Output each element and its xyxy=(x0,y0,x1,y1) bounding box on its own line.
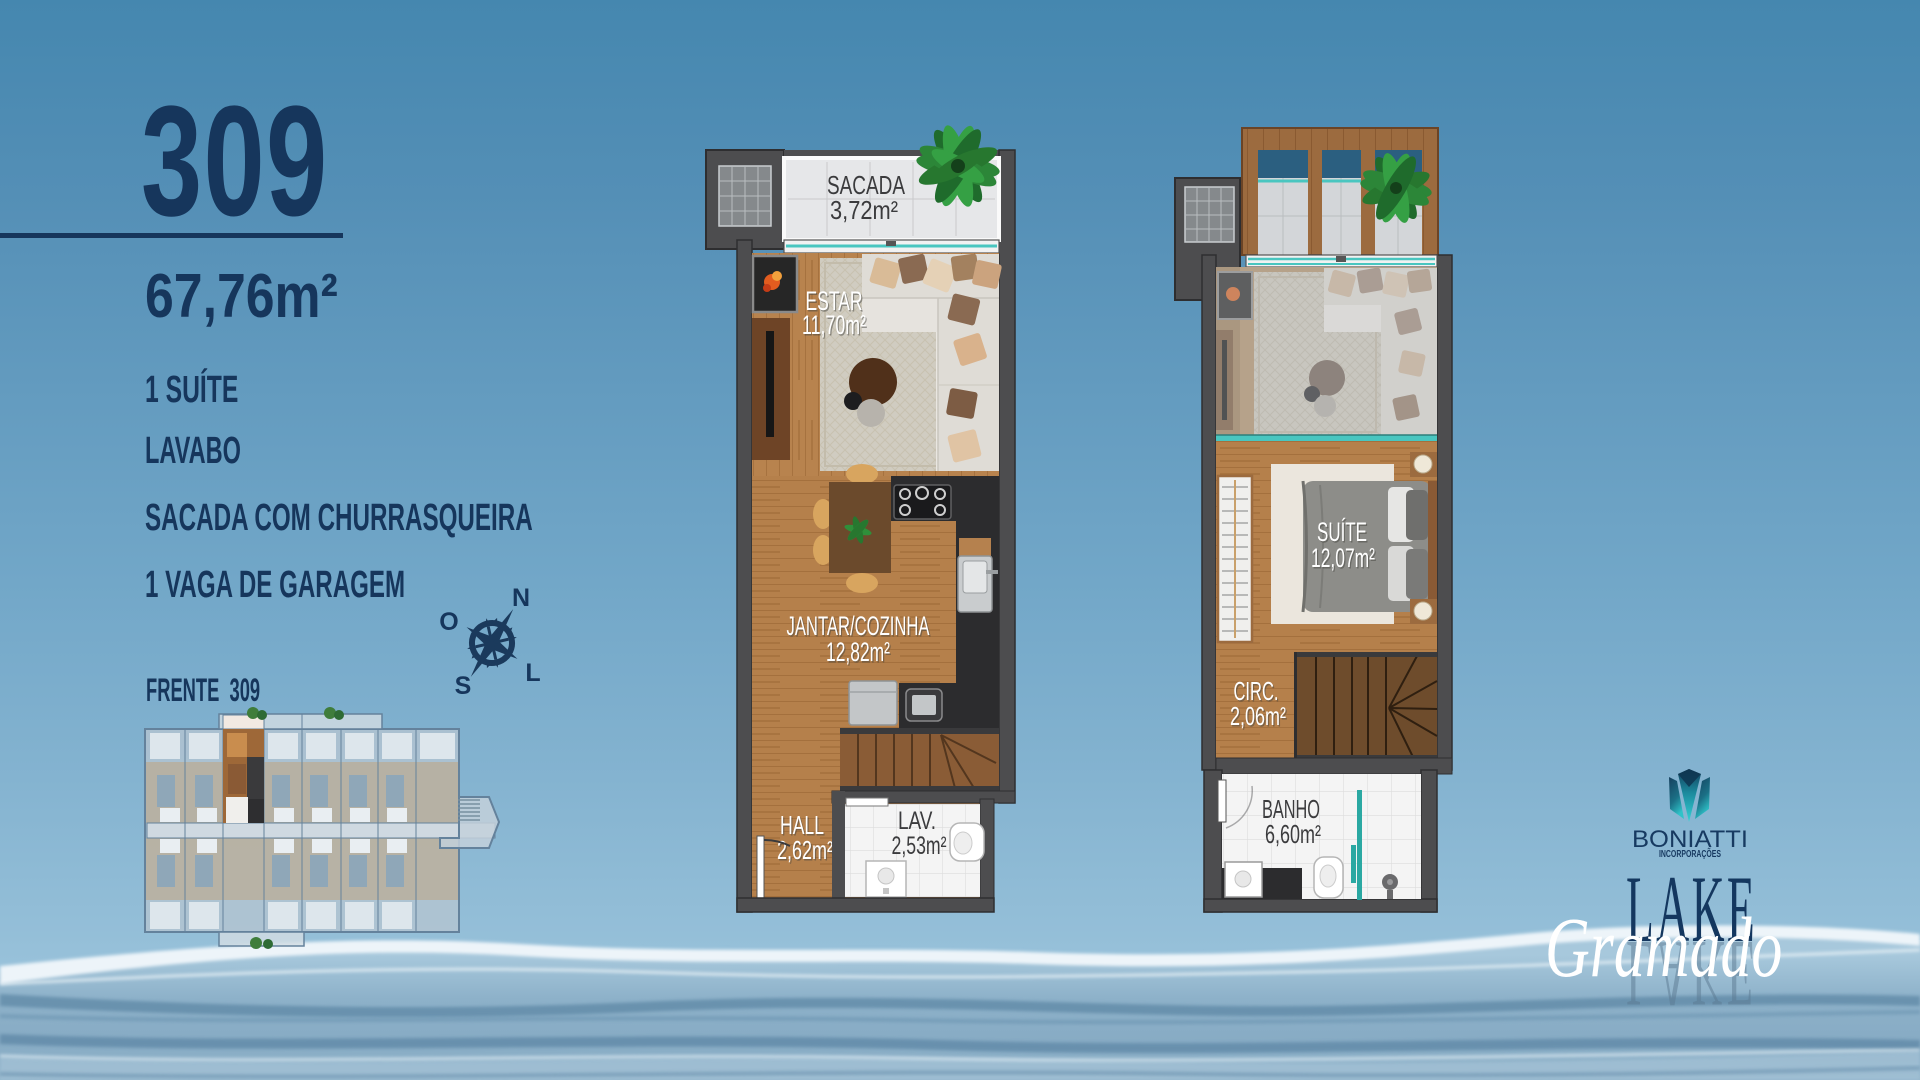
svg-text:6,60m²: 6,60m² xyxy=(1265,819,1321,849)
svg-text:11,70m²: 11,70m² xyxy=(802,310,866,340)
svg-text:3,72m²: 3,72m² xyxy=(830,195,898,225)
svg-text:L: L xyxy=(525,659,540,687)
svg-text:S: S xyxy=(455,672,472,700)
svg-text:O: O xyxy=(439,608,458,636)
svg-text:LAV.: LAV. xyxy=(898,807,936,835)
svg-text:2,62m²: 2,62m² xyxy=(777,835,833,865)
svg-text:12,07m²: 12,07m² xyxy=(1311,543,1375,573)
svg-text:N: N xyxy=(512,584,530,612)
svg-text:2,06m²: 2,06m² xyxy=(1230,701,1286,731)
svg-text:12,82m²: 12,82m² xyxy=(826,637,890,667)
svg-text:2,53m²: 2,53m² xyxy=(892,832,947,860)
